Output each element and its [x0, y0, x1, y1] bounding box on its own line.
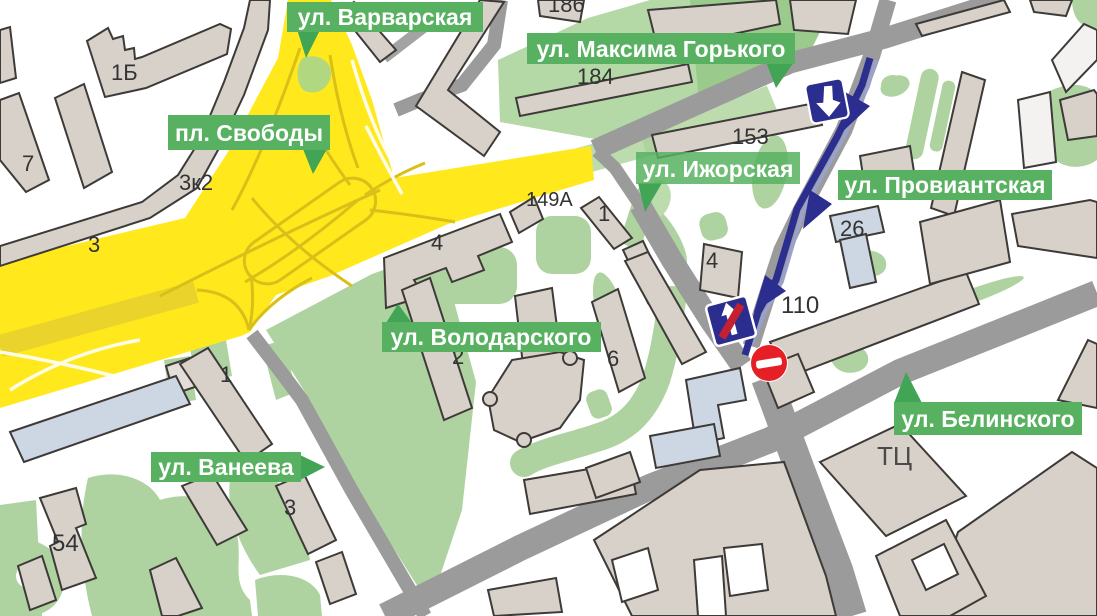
svg-text:3: 3 [284, 495, 296, 520]
svg-text:26: 26 [840, 216, 864, 241]
svg-text:ул. Белинского: ул. Белинского [901, 406, 1074, 432]
svg-text:ул. Провиантская: ул. Провиантская [845, 172, 1046, 198]
svg-text:186: 186 [548, 0, 585, 17]
svg-text:4: 4 [706, 248, 718, 273]
svg-text:7: 7 [22, 151, 34, 176]
svg-text:3: 3 [88, 232, 100, 257]
svg-text:ТЦ: ТЦ [877, 441, 912, 471]
svg-text:3к2: 3к2 [179, 170, 213, 195]
svg-text:4: 4 [431, 230, 443, 255]
svg-text:пл. Свободы: пл. Свободы [175, 120, 323, 146]
svg-text:1: 1 [220, 362, 232, 387]
svg-text:149А: 149А [526, 189, 573, 211]
svg-text:ул. Варварская: ул. Варварская [298, 4, 473, 30]
svg-text:ул. Максима Горького: ул. Максима Горького [537, 36, 786, 62]
svg-text:1: 1 [598, 201, 610, 226]
svg-text:1Б: 1Б [111, 60, 138, 85]
svg-text:ул. Володарского: ул. Володарского [391, 324, 592, 350]
svg-text:ул. Ижорская: ул. Ижорская [643, 156, 794, 182]
svg-text:ул. Ванеева: ул. Ванеева [158, 454, 294, 480]
svg-text:110: 110 [781, 292, 819, 319]
svg-text:6: 6 [607, 346, 619, 371]
svg-text:184: 184 [577, 64, 614, 89]
svg-text:153: 153 [732, 124, 769, 149]
svg-text:54: 54 [52, 530, 79, 557]
